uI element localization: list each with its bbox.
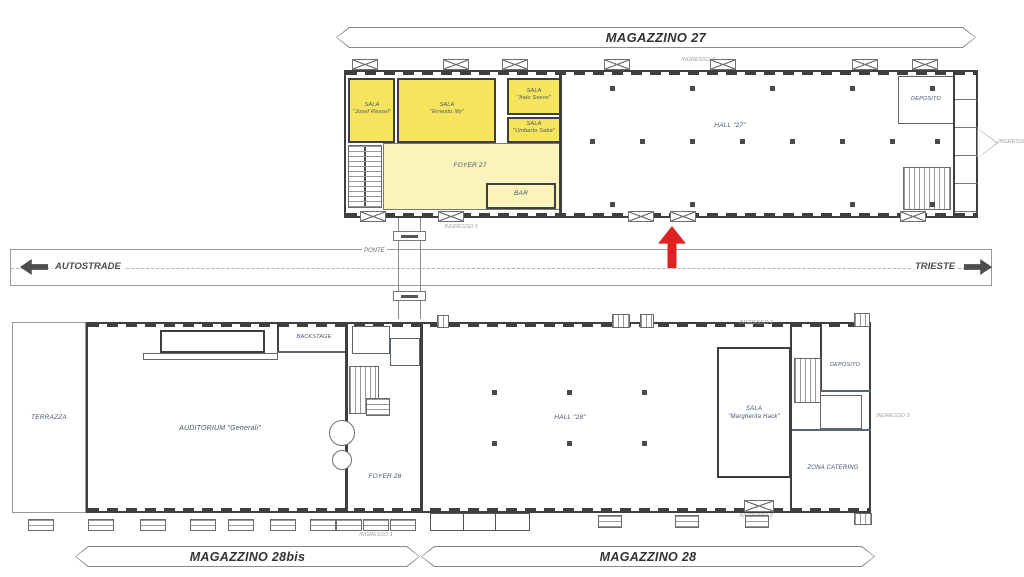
east-service-rooms-27 [953,72,977,216]
room-label-sala-margherita-hack: SALA "Margherita Hack" [710,406,798,422]
entrance-canopy-marker [612,314,630,328]
road-label-autostrade: AUTOSTRADE [52,261,124,272]
room-label-zona-catering: ZONA CATERING [795,465,871,473]
stairs-block-28 [366,398,390,416]
skylight-marker [352,59,378,70]
wall-backstage-west [277,324,279,352]
column-marker [890,139,895,144]
column-marker [690,202,695,207]
room-label-hall-27: HALL "27" [690,122,770,130]
road-band [10,249,992,286]
floor-plan-canvas: MAGAZZINO 27 SALA "Josef Ressel" SALA "E… [0,0,1024,577]
entrance-label-ingresso-1: INGRESSO 1 [350,532,402,538]
banner-magazzino-28bis: MAGAZZINO 28bis [75,546,420,567]
entrance-label-ingresso-6: INGRESSO 6 [998,139,1024,145]
room-label-sala-ernesto-illy: SALA "Ernesto Illy" [414,102,480,116]
label-line: SALA [527,88,542,94]
label-line: "Italo Svevo" [504,95,564,102]
banner-magazzino-28-label: MAGAZZINO 28 [421,546,875,567]
spiral-column-large [329,420,355,446]
wall-backstage-south [277,351,345,353]
skylight-marker [438,211,464,222]
skylight-marker [670,211,696,222]
banner-magazzino-28bis-label: MAGAZZINO 28bis [75,546,420,567]
loading-dock-marker [390,519,416,531]
wall-auditorium-foyer [345,324,348,511]
loading-dock-marker [854,513,872,525]
service-room-foyer-28-b [390,338,420,366]
column-marker [930,86,935,91]
spiral-column-small [332,450,352,470]
column-marker [930,202,935,207]
road-label-trieste: TRIESTE [912,261,958,272]
skylight-marker [852,59,878,70]
column-marker [567,390,572,395]
entrance-label-ingresso-3: INGRESSO 3 [876,413,920,419]
label-line: "Margherita Hack" [710,414,798,422]
column-marker [567,441,572,446]
loading-dock-marker [270,519,296,531]
bridge-south-cap [393,291,426,301]
banner-magazzino-28: MAGAZZINO 28 [421,546,875,567]
column-marker [935,139,940,144]
wall-foyer-hall-28 [420,324,423,511]
auditorium-stage-lip [143,353,278,360]
skylight-marker [604,59,630,70]
loading-dock-marker [310,519,336,531]
room-label-foyer-28: FOYER 28 [355,473,415,481]
skylight-marker [502,59,528,70]
entrance-platform-ingresso-1 [430,513,530,531]
column-marker [492,390,497,395]
service-room-foyer-28-a [352,326,390,354]
loading-dock-marker [190,519,216,531]
column-marker [840,139,845,144]
column-marker [740,139,745,144]
skylight-marker [900,211,926,222]
area-label-terrazza: TERRAZZA [14,414,84,422]
entrance-label-ingresso-5: INGRESSO 5 [436,224,486,230]
loading-dock-marker [363,519,389,531]
room-label-foyer-27: FOYER 27 [420,162,520,170]
label-line: "Ernesto Illy" [414,109,480,116]
column-marker [850,202,855,207]
skylight-marker [443,59,469,70]
toilets-block-28-east [794,358,821,403]
wall-deposito-28-south [820,390,871,392]
entrance-canopy-ingresso-2 [744,500,774,512]
skylight-marker [628,211,654,222]
room-label-deposito-28: DEPOSITO [820,362,870,369]
loading-dock-marker [88,519,114,531]
column-marker [642,441,647,446]
loading-dock-marker [745,515,769,528]
entrance-canopy-marker [854,313,870,327]
entrance-canopy-marker [640,314,654,328]
column-marker [492,441,497,446]
column-marker [690,86,695,91]
auditorium-stage [160,330,265,353]
skylight-marker [912,59,938,70]
funnel-inner [978,129,997,157]
wall-hall-east-zone [790,324,792,511]
road-label-ponte: PONTE [362,248,387,254]
room-label-sala-italo-svevo: SALA "Italo Svevo" [504,88,564,102]
toilets-block-27 [903,167,951,210]
stairs-block-27 [348,145,382,208]
wall-foyer-hall-27 [559,72,562,216]
column-marker [690,139,695,144]
label-line: "Josef Ressel" [340,109,404,116]
label-line: SALA [527,121,542,127]
loading-dock-marker [675,515,699,528]
column-marker [610,202,615,207]
label-line: SALA [746,406,762,412]
room-label-backstage: BACKSTAGE [284,334,344,341]
column-marker [610,86,615,91]
column-marker [590,139,595,144]
entrance-label-ingresso-4: INGRESSO 4 [731,320,781,326]
wall-zona-catering-north [792,429,871,431]
loading-dock-marker [140,519,166,531]
column-marker [642,390,647,395]
column-marker [850,86,855,91]
bridge-north-cap [393,231,426,241]
label-line: SALA [365,102,380,108]
column-marker [790,139,795,144]
loading-dock-marker [28,519,54,531]
loading-dock-marker [228,519,254,531]
loading-dock-marker [336,519,362,531]
entrance-canopy-marker [437,315,449,328]
vestibule-ingresso-3 [820,395,862,429]
room-label-sala-umberto-saba: SALA "Umberto Saba" [502,121,566,135]
room-label-auditorium-generali: AUDITORIUM "Generali" [145,424,295,433]
room-label-bar: BAR [486,190,556,198]
loading-dock-marker [598,515,622,528]
label-line: "Umberto Saba" [502,128,566,135]
room-label-deposito-27: DEPOSITO [898,96,954,103]
banner-magazzino-27-label: MAGAZZINO 27 [336,27,976,48]
label-line: SALA [440,102,455,108]
banner-magazzino-27: MAGAZZINO 27 [336,27,976,48]
building-27-east-entry-funnel [977,128,998,158]
room-label-sala-josef-ressel: SALA "Josef Ressel" [340,102,404,116]
skylight-marker [360,211,386,222]
column-marker [770,86,775,91]
road-center-line [11,268,991,269]
column-marker [640,139,645,144]
room-label-hall-28: HALL "28" [530,414,610,422]
skylight-marker [710,59,736,70]
